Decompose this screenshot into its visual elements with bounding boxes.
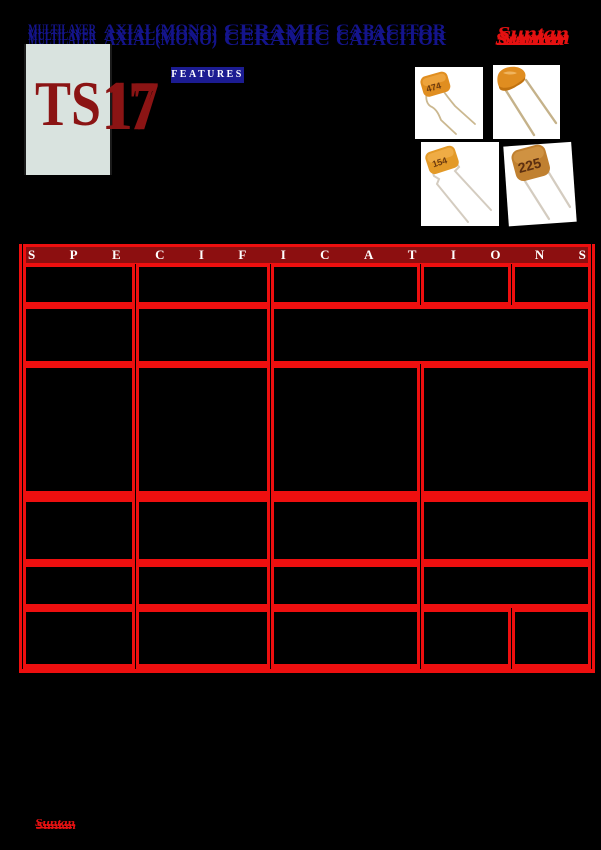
svg-text:TS: TS	[35, 69, 101, 139]
svg-text:MULTILAYER: MULTILAYER	[28, 27, 96, 44]
svg-text:CAPACITOR: CAPACITOR	[336, 27, 447, 44]
svg-text:Suntan: Suntan	[495, 29, 565, 49]
svg-text:Suntan: Suntan	[36, 820, 76, 832]
svg-text:17: 17	[106, 68, 159, 145]
svg-text:AXIAL(MONO): AXIAL(MONO)	[104, 27, 217, 44]
svg-text:CERAMIC: CERAMIC	[224, 27, 330, 44]
